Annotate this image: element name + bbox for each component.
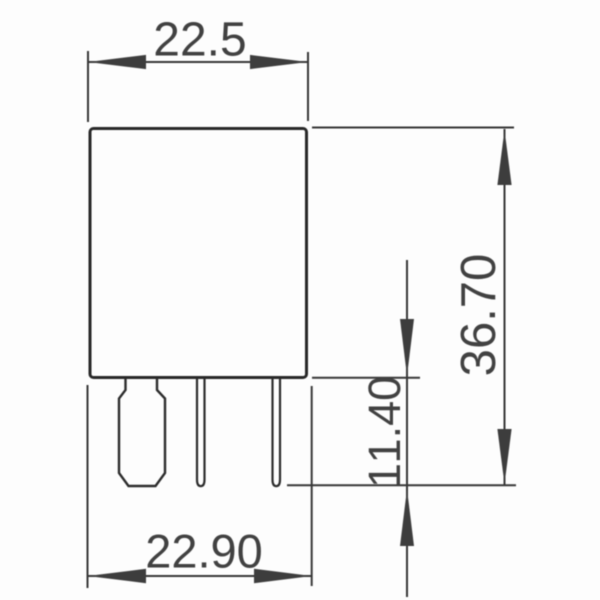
svg-text:36.70: 36.70 [452,254,506,377]
svg-text:11.40: 11.40 [359,376,410,488]
svg-text:22.5: 22.5 [153,14,246,67]
svg-text:22.90: 22.90 [145,525,263,578]
